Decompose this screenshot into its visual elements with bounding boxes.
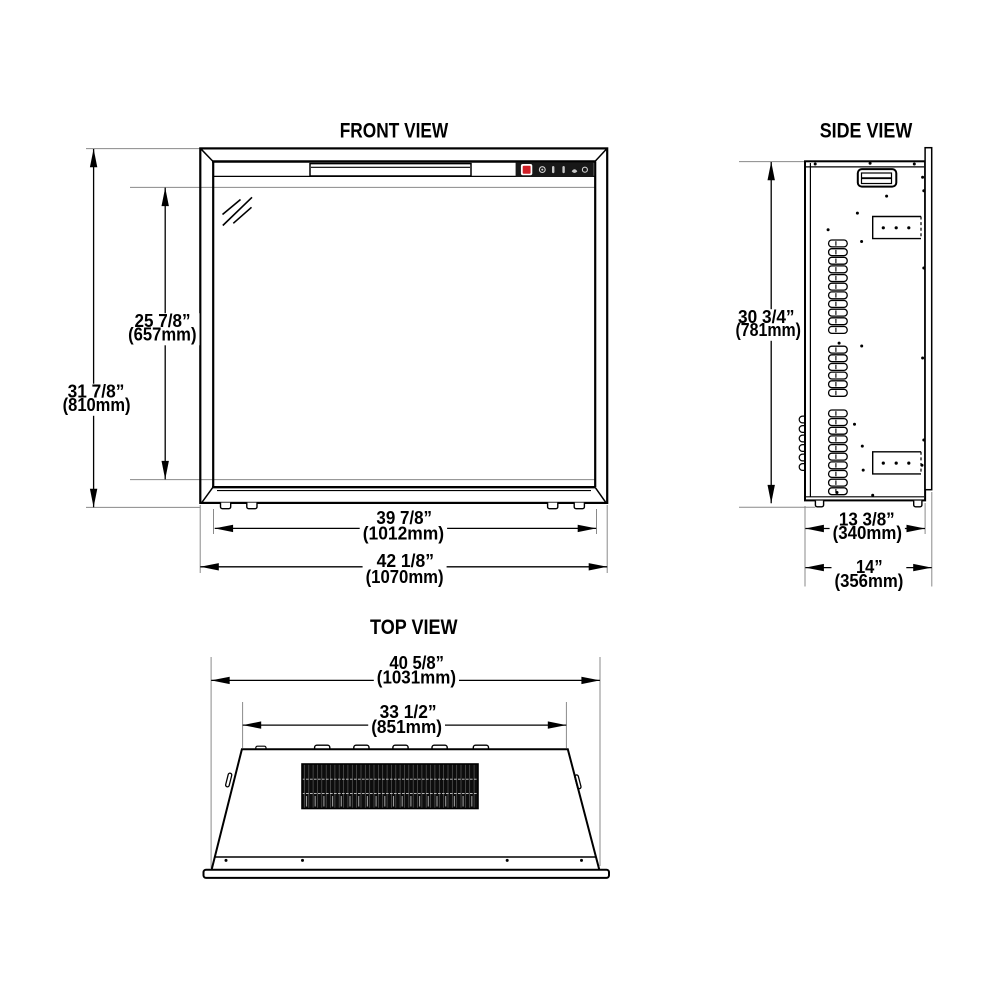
svg-text:TOP VIEW: TOP VIEW	[370, 616, 458, 639]
svg-text:(810mm): (810mm)	[63, 395, 131, 415]
svg-text:(1012mm): (1012mm)	[363, 524, 444, 544]
svg-text:SIDE VIEW: SIDE VIEW	[820, 120, 913, 143]
svg-text:(1031mm): (1031mm)	[377, 668, 456, 688]
svg-text:FRONT VIEW: FRONT VIEW	[340, 120, 449, 143]
svg-text:(340mm): (340mm)	[833, 523, 902, 543]
svg-text:(781mm): (781mm)	[735, 320, 801, 340]
svg-text:(851mm): (851mm)	[371, 717, 442, 737]
svg-text:(657mm): (657mm)	[128, 325, 196, 345]
svg-text:(1070mm): (1070mm)	[366, 567, 444, 587]
svg-text:(356mm): (356mm)	[835, 571, 904, 591]
